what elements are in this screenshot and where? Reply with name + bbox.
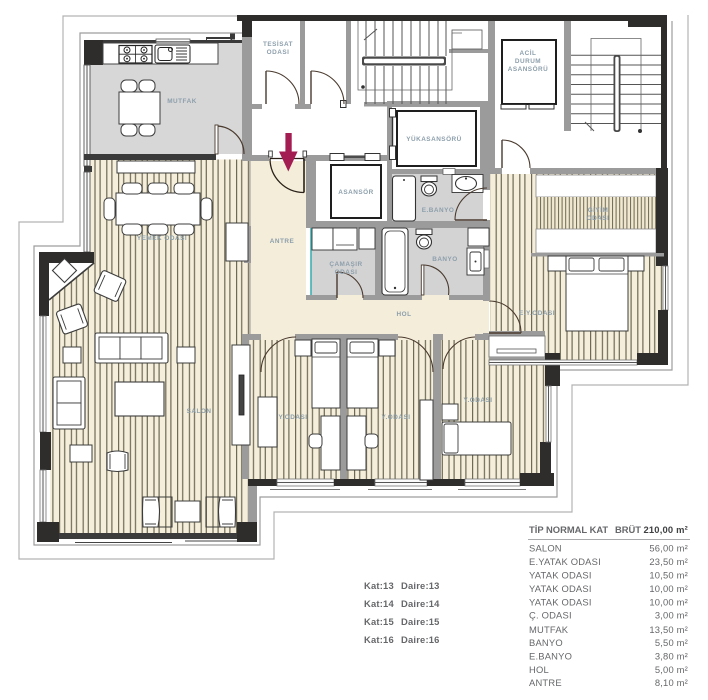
svg-text:BANYO: BANYO [529, 637, 563, 648]
svg-text:ÇAMAŞIR: ÇAMAŞIR [329, 261, 362, 268]
svg-text:E.Y.ODASI: E.Y.ODASI [519, 310, 555, 317]
svg-text:SALON: SALON [529, 543, 562, 554]
svg-text:MUTFAK: MUTFAK [167, 98, 197, 105]
svg-text:YEMEK ODASI: YEMEK ODASI [137, 235, 187, 242]
svg-text:E.BANYO: E.BANYO [529, 651, 572, 662]
svg-text:5,00 m²: 5,00 m² [655, 664, 688, 675]
svg-text:10,50 m²: 10,50 m² [649, 570, 688, 581]
svg-text:ANTRE: ANTRE [270, 238, 295, 245]
svg-text:BRÜT: BRÜT [615, 524, 641, 535]
svg-text:10,00 m²: 10,00 m² [649, 583, 688, 594]
svg-text:56,00 m²: 56,00 m² [649, 543, 688, 554]
svg-text:BANYO: BANYO [432, 256, 458, 263]
svg-text:Daire:15: Daire:15 [401, 616, 440, 627]
svg-text:E.YATAK ODASI: E.YATAK ODASI [529, 556, 601, 567]
svg-text:210,00 m²: 210,00 m² [643, 524, 688, 535]
svg-text:ACİL: ACİL [520, 48, 537, 57]
svg-text:8,10 m²: 8,10 m² [655, 677, 688, 688]
svg-text:E.BANYO: E.BANYO [422, 207, 455, 214]
svg-text:Y.ODASI: Y.ODASI [463, 397, 492, 404]
svg-text:ODASI: ODASI [587, 215, 610, 222]
svg-text:YATAK ODASI: YATAK ODASI [529, 570, 592, 581]
svg-text:TİP NORMAL KAT: TİP NORMAL KAT [529, 524, 608, 535]
svg-text:Kat:14: Kat:14 [364, 598, 394, 609]
svg-text:ODASI: ODASI [335, 269, 358, 276]
svg-text:HOL: HOL [397, 311, 412, 318]
svg-text:Ç. ODASI: Ç. ODASI [529, 610, 572, 621]
svg-text:TESİSAT: TESİSAT [263, 39, 293, 48]
svg-text:Kat:13: Kat:13 [364, 580, 394, 591]
svg-text:GİYİM: GİYİM [588, 205, 609, 214]
svg-text:YÜKASANSÖRÜ: YÜKASANSÖRÜ [406, 134, 462, 143]
svg-text:HOL: HOL [529, 664, 549, 675]
svg-text:Y.ODASI: Y.ODASI [278, 414, 307, 421]
svg-text:ASANSÖRÜ: ASANSÖRÜ [508, 64, 549, 73]
svg-text:ASANSÖR: ASANSÖR [338, 187, 373, 196]
svg-text:Daire:16: Daire:16 [401, 634, 440, 645]
svg-text:5,50 m²: 5,50 m² [655, 637, 688, 648]
svg-text:3,00 m²: 3,00 m² [655, 610, 688, 621]
svg-text:10,00 m²: 10,00 m² [649, 597, 688, 608]
svg-text:Daire:13: Daire:13 [401, 580, 440, 591]
svg-text:13,50 m²: 13,50 m² [649, 624, 688, 635]
svg-text:Daire:14: Daire:14 [401, 598, 440, 609]
svg-text:ANTRE: ANTRE [529, 677, 562, 688]
svg-text:SALON: SALON [187, 408, 212, 415]
svg-text:Kat:15: Kat:15 [364, 616, 394, 627]
svg-text:Y.ODASI: Y.ODASI [381, 414, 410, 421]
svg-text:DURUM: DURUM [515, 58, 541, 65]
svg-text:23,50 m²: 23,50 m² [649, 556, 688, 567]
svg-text:MUTFAK: MUTFAK [529, 624, 569, 635]
svg-text:3,80 m²: 3,80 m² [655, 651, 688, 662]
svg-text:Kat:16: Kat:16 [364, 634, 394, 645]
svg-text:ODASI: ODASI [267, 49, 290, 56]
svg-text:YATAK ODASI: YATAK ODASI [529, 583, 592, 594]
svg-text:YATAK ODASI: YATAK ODASI [529, 597, 592, 608]
